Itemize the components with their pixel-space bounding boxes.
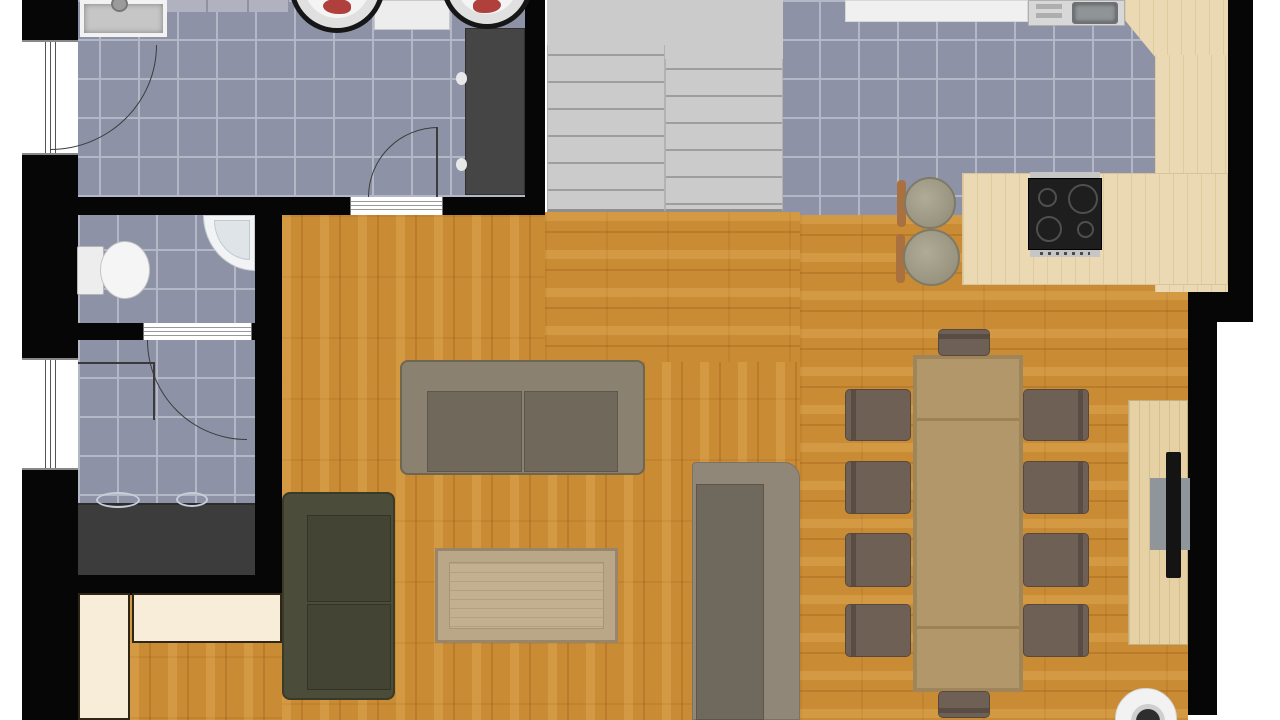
staircase-landing-right <box>665 0 783 59</box>
kitchen-faucet-bar-2 <box>1036 13 1062 18</box>
dining-table-divider-2 <box>917 626 1019 629</box>
wall-left-top <box>22 0 78 40</box>
dining-table-divider-1 <box>917 418 1019 421</box>
cooktop-burner-large-tr <box>1068 184 1098 214</box>
wall-right-bottom <box>1188 292 1217 715</box>
sofa-taupe-seat-right <box>524 391 618 472</box>
wall-left-mid <box>22 155 78 358</box>
vanity-basin-outline-1 <box>96 492 140 508</box>
door-laundry-threshold <box>350 197 443 215</box>
vanity-basin-outline-2 <box>176 492 208 507</box>
wall-wc-right <box>255 197 282 595</box>
laundry-cabinet-handle-1 <box>456 72 467 85</box>
wall-bath-bottom <box>22 575 282 595</box>
bar-stool-2 <box>903 229 960 286</box>
dining-chair-bottom <box>938 691 990 718</box>
understairs-floor <box>545 212 800 362</box>
dining-chair-right-4 <box>1023 604 1089 657</box>
toilet-bowl <box>100 241 150 299</box>
sofa-taupe-seat-left <box>427 391 522 472</box>
shower-screen-vertical <box>153 362 155 420</box>
cooktop-trim-bottom <box>1030 250 1100 257</box>
wall-laundry-bottom <box>22 197 545 215</box>
bar-stool-1 <box>904 177 956 229</box>
laundry-cabinet-handle-2 <box>456 158 467 171</box>
shower-screen-horizontal <box>78 362 155 364</box>
laundry-counter <box>374 0 450 30</box>
kitchen-upper-cabinets <box>845 0 1028 22</box>
staircase-landing-left <box>547 0 665 45</box>
bathroom-vanity-counter <box>78 503 255 575</box>
sofa-green-seat-bottom <box>307 604 391 690</box>
laundry-cabinet <box>465 28 525 195</box>
dining-chair-right-3 <box>1023 533 1089 587</box>
wall-laundry-right <box>525 0 545 215</box>
dining-chair-left-3 <box>845 533 911 587</box>
dining-chair-left-2 <box>845 461 911 514</box>
wall-right-top <box>1228 0 1253 322</box>
dining-chair-left-4 <box>845 604 911 657</box>
wall-left-bottom <box>22 470 78 720</box>
hallway-wardrobe-vertical <box>78 593 130 720</box>
kitchen-sink-basin <box>1072 2 1118 24</box>
laundry-wall-shelf <box>167 0 289 12</box>
tv-screen <box>1166 452 1181 578</box>
washing-machine-1-logo <box>323 0 351 14</box>
dining-chair-right-1 <box>1023 389 1089 441</box>
sofa-green-seat-top <box>307 515 391 602</box>
cooktop-burner-small-br <box>1077 221 1094 238</box>
wall-wc-bath-left <box>78 323 145 340</box>
door-wc-threshold <box>143 323 252 340</box>
window-bathroom <box>22 358 78 470</box>
coffee-table-inner-panel <box>449 562 604 629</box>
cooktop-burner-medium-bl <box>1036 216 1062 242</box>
hallway-wardrobe-horizontal <box>132 593 282 643</box>
dining-chair-top <box>938 329 990 356</box>
dining-chair-left-1 <box>845 389 911 441</box>
dining-chair-right-2 <box>1023 461 1089 514</box>
kitchen-faucet-bar-1 <box>1036 4 1062 9</box>
bench-sofa-cushions <box>696 484 764 720</box>
dining-table <box>913 355 1023 692</box>
cooktop-burner-small-tl <box>1038 188 1057 207</box>
floor-plan-canvas <box>0 0 1280 720</box>
wall-wc-bath-right <box>250 323 282 340</box>
